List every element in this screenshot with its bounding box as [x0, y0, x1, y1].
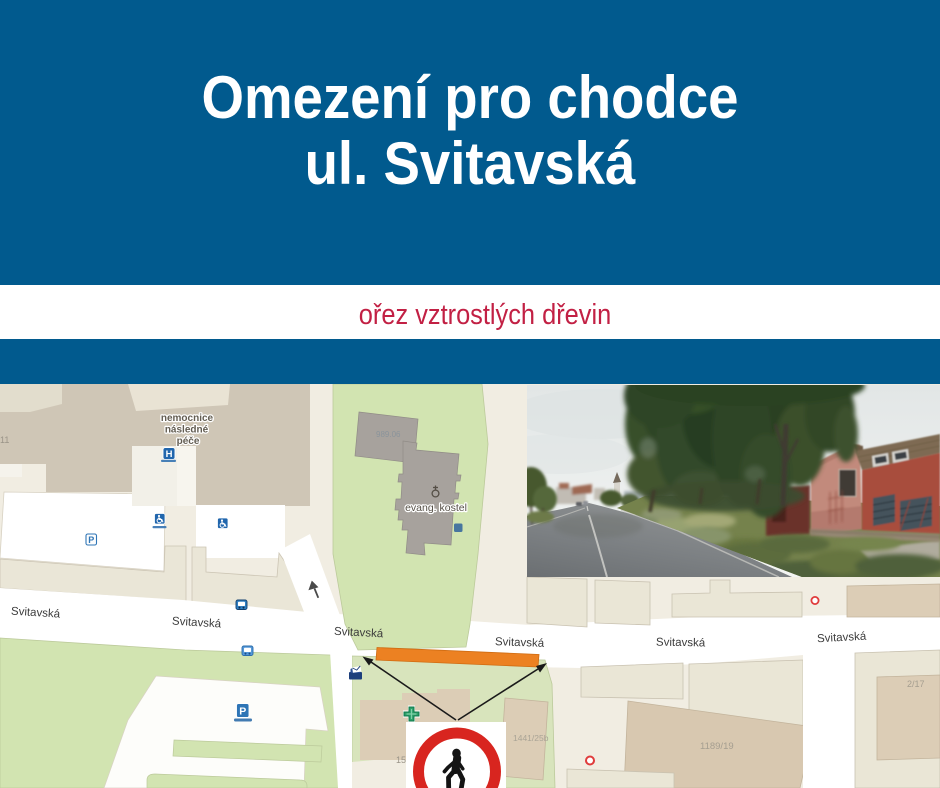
svg-text:péče: péče: [177, 436, 200, 447]
svg-text:1189/19: 1189/19: [700, 741, 734, 752]
svg-text:Svitavská: Svitavská: [656, 637, 706, 650]
svg-text:P: P: [88, 535, 94, 545]
svg-text:989.06: 989.06: [376, 430, 401, 439]
svg-text:Svitavská: Svitavská: [495, 636, 545, 650]
svg-text:P: P: [239, 706, 246, 718]
svg-text:následné: následné: [165, 425, 209, 436]
svg-text:nemocnice: nemocnice: [161, 413, 214, 424]
svg-text:evang. kostel: evang. kostel: [405, 502, 467, 514]
svg-text:11: 11: [0, 435, 9, 445]
svg-text:2/17: 2/17: [907, 679, 925, 689]
svg-text:15: 15: [396, 755, 406, 765]
svg-text:H: H: [166, 449, 173, 460]
svg-text:1441/25b: 1441/25b: [513, 733, 549, 743]
